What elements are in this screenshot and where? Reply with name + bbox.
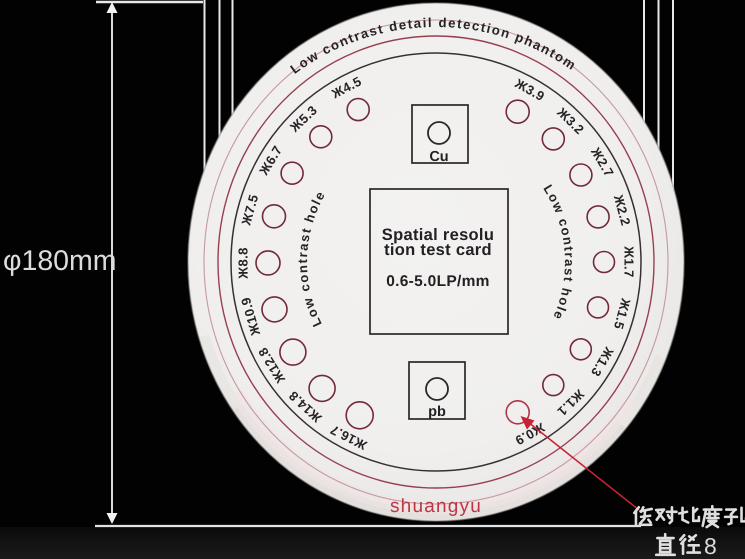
svg-text:0.6-5.0LP/mm: 0.6-5.0LP/mm <box>386 273 490 290</box>
svg-text:tion test card: tion test card <box>384 241 492 259</box>
svg-text:φ180mm: φ180mm <box>3 245 117 277</box>
svg-text:pb: pb <box>428 404 446 420</box>
svg-text:8: 8 <box>704 533 717 559</box>
svg-text:shuangyu: shuangyu <box>390 496 482 517</box>
svg-text:Ж1.7: Ж1.7 <box>622 245 637 277</box>
svg-text:Ж8.8: Ж8.8 <box>235 247 250 279</box>
svg-text:Cu: Cu <box>429 149 448 165</box>
